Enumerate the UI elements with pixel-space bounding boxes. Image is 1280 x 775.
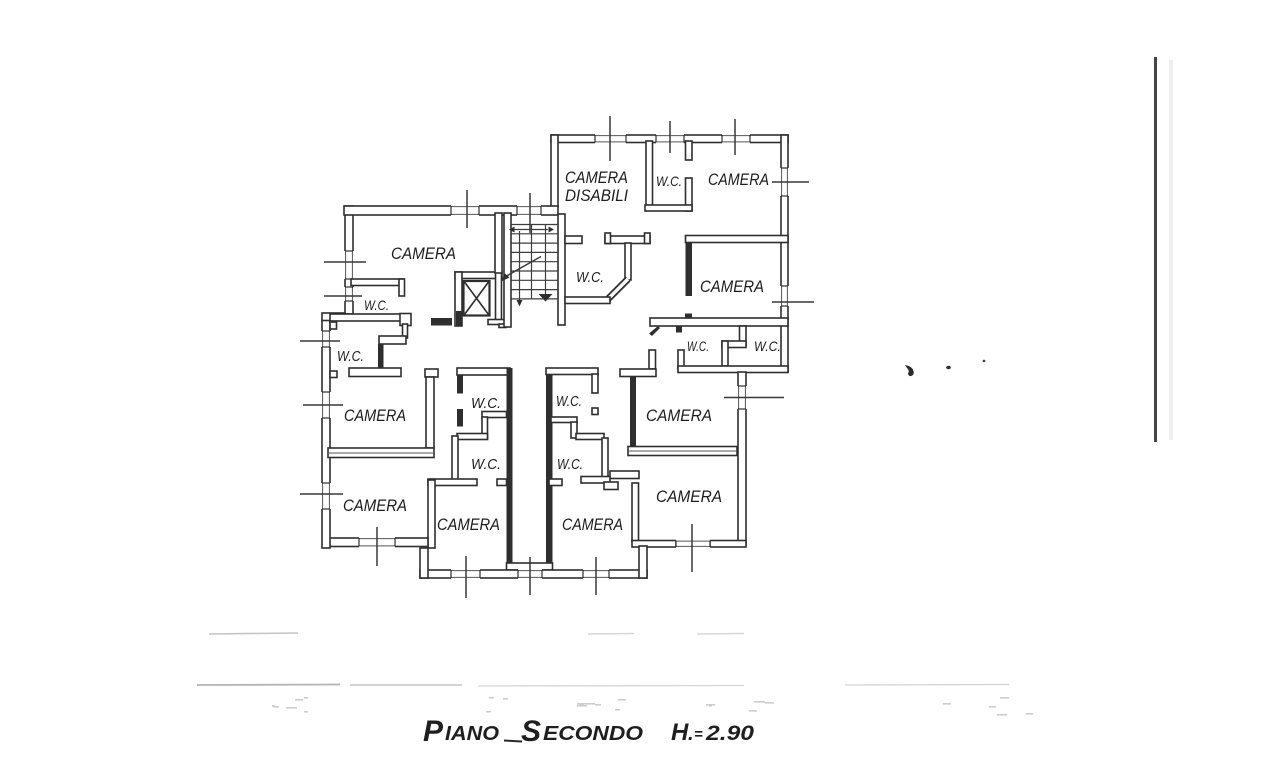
svg-text:DISABILI: DISABILI — [565, 187, 628, 205]
svg-text:CAMERA: CAMERA — [437, 516, 500, 534]
svg-text:CAMERA: CAMERA — [708, 171, 769, 189]
svg-text:ECONDO: ECONDO — [543, 723, 643, 745]
svg-text:CAMERA: CAMERA — [656, 488, 722, 506]
svg-text:W.C.: W.C. — [576, 270, 604, 286]
svg-text:W.C.: W.C. — [754, 338, 781, 354]
svg-text:CAMERA: CAMERA — [343, 497, 407, 515]
svg-text:CAMERA: CAMERA — [344, 407, 406, 425]
svg-text:W.C.: W.C. — [471, 456, 501, 473]
svg-text:CAMERA: CAMERA — [391, 245, 456, 263]
svg-text:CAMERA: CAMERA — [562, 516, 623, 534]
svg-text:W.C.: W.C. — [687, 339, 709, 354]
svg-text:W.C.: W.C. — [557, 457, 583, 473]
svg-text:=: = — [694, 726, 703, 743]
svg-text:P: P — [423, 715, 444, 748]
svg-text:CAMERA: CAMERA — [700, 278, 764, 296]
svg-text:W.C.: W.C. — [656, 173, 682, 189]
svg-text:2.90: 2.90 — [705, 722, 755, 745]
svg-text:W.C.: W.C. — [471, 395, 501, 412]
svg-text:IANO: IANO — [445, 723, 499, 745]
svg-text:CAMERA: CAMERA — [565, 169, 628, 187]
svg-text:.: . — [688, 723, 694, 745]
svg-text:S: S — [521, 715, 541, 748]
svg-text:H: H — [671, 719, 689, 746]
svg-text:W.C.: W.C. — [556, 394, 582, 410]
svg-text:W.C.: W.C. — [364, 297, 389, 313]
svg-text:CAMERA: CAMERA — [646, 407, 712, 425]
svg-text:W.C.: W.C. — [337, 349, 364, 365]
